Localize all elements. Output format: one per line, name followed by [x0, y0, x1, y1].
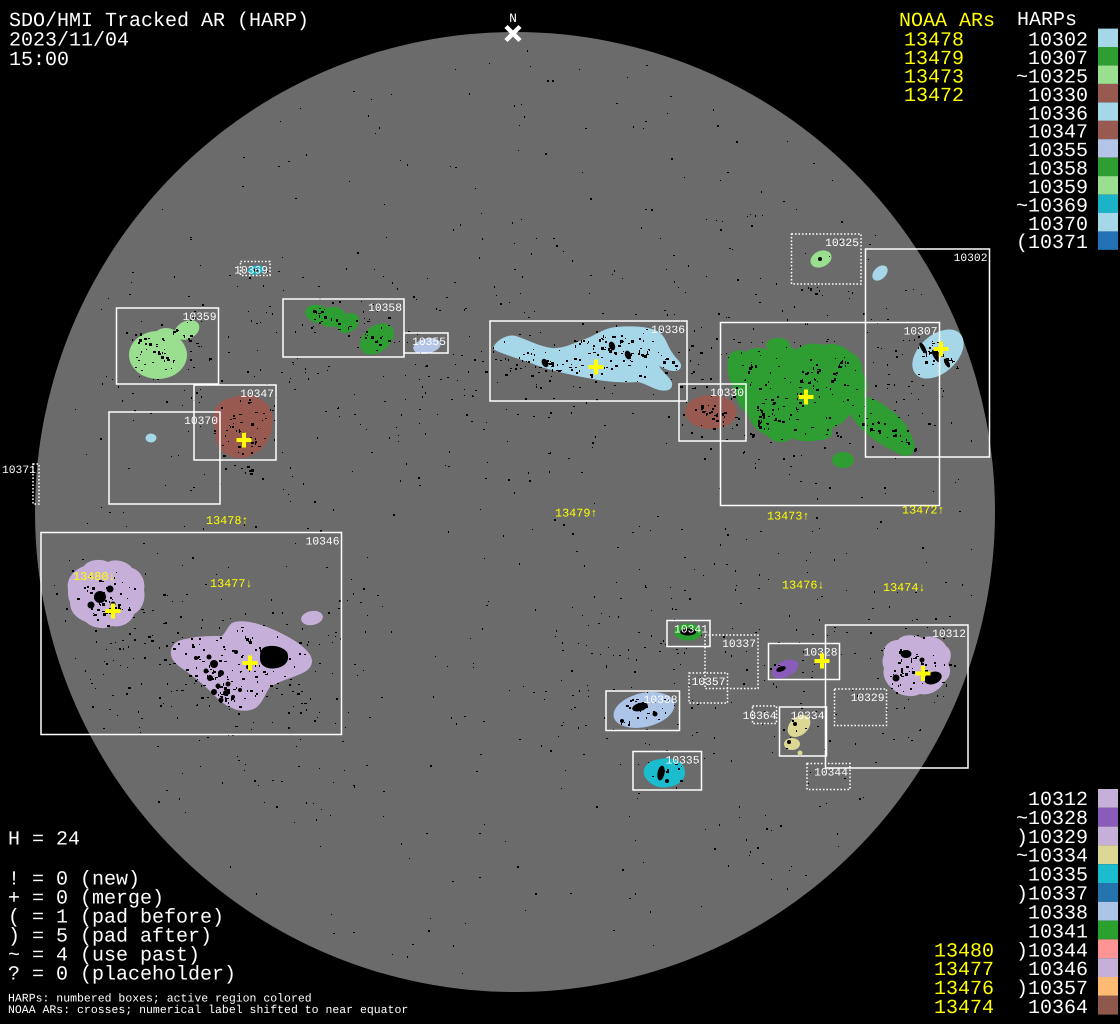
svg-text:10355: 10355	[412, 337, 446, 349]
svg-text:H = 24: H = 24	[8, 829, 80, 852]
svg-text:13478↑: 13478↑	[206, 514, 248, 528]
svg-text:10357: 10357	[692, 677, 726, 689]
svg-text:10337: 10337	[722, 639, 756, 651]
svg-text:10344: 10344	[814, 768, 848, 780]
svg-text:13480↓: 13480↓	[73, 570, 115, 584]
svg-text:10369: 10369	[234, 266, 268, 278]
svg-text:10335: 10335	[666, 756, 700, 768]
svg-text:13472: 13472	[904, 85, 964, 108]
svg-text:10330: 10330	[710, 388, 744, 400]
svg-text:10359: 10359	[183, 312, 217, 324]
svg-text:13474↓: 13474↓	[883, 581, 925, 595]
svg-text:10338: 10338	[644, 695, 678, 707]
svg-text:13472↑: 13472↑	[902, 504, 944, 518]
svg-text:13476↓: 13476↓	[782, 579, 824, 593]
svg-text:10371: 10371	[2, 465, 36, 477]
svg-text:10329: 10329	[851, 693, 885, 705]
svg-text:10341: 10341	[674, 625, 708, 637]
svg-text:13477↓: 13477↓	[210, 577, 252, 591]
svg-text:10370: 10370	[184, 416, 218, 428]
svg-text:13473↑: 13473↑	[767, 510, 809, 524]
svg-text:? = 0 (placeholder): ? = 0 (placeholder)	[8, 964, 236, 987]
svg-text:HARPs: HARPs	[1017, 9, 1077, 32]
svg-text:10346: 10346	[306, 537, 340, 549]
svg-text:10307: 10307	[904, 327, 938, 339]
svg-text:N: N	[509, 11, 517, 26]
svg-text:13479↑: 13479↑	[555, 507, 597, 521]
svg-text:10334: 10334	[791, 711, 825, 723]
svg-text:13474: 13474	[934, 997, 994, 1020]
svg-text:10312: 10312	[932, 629, 966, 641]
svg-text:10347: 10347	[240, 389, 274, 401]
svg-text:10364: 10364	[743, 711, 777, 723]
svg-text:10325: 10325	[825, 238, 859, 250]
svg-text:15:00: 15:00	[9, 49, 69, 72]
svg-text:10336: 10336	[651, 325, 685, 337]
svg-text:(10371: (10371	[1016, 232, 1088, 255]
svg-text:10302: 10302	[954, 253, 988, 265]
svg-text:10364: 10364	[1028, 997, 1088, 1020]
svg-text:10358: 10358	[368, 303, 402, 315]
svg-text:NOAA ARs: crosses; numerical l: NOAA ARs: crosses; numerical label shift…	[8, 1004, 408, 1017]
